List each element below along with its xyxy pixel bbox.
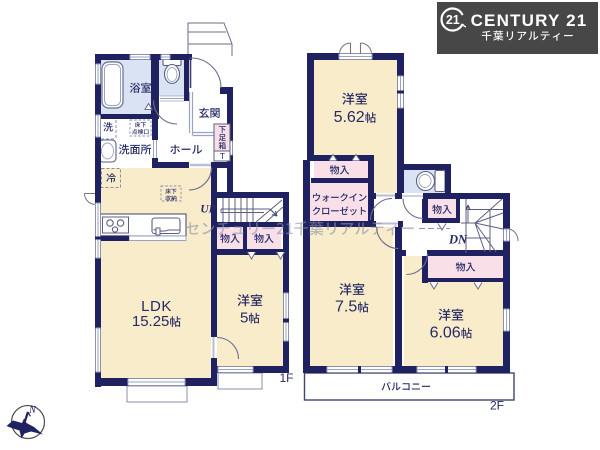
svg-text:T: T bbox=[220, 151, 225, 161]
svg-text:1F: 1F bbox=[279, 371, 293, 385]
svg-text:DN: DN bbox=[448, 233, 468, 247]
svg-text:5: 5 bbox=[240, 310, 248, 327]
svg-text:6.06: 6.06 bbox=[430, 325, 461, 342]
svg-text:15.25: 15.25 bbox=[132, 313, 170, 330]
svg-text:CENTURY 21: CENTURY 21 bbox=[471, 11, 588, 30]
svg-text:N: N bbox=[28, 405, 37, 416]
svg-text:2F: 2F bbox=[490, 399, 504, 413]
svg-text:21: 21 bbox=[446, 13, 460, 27]
svg-text:7.5: 7.5 bbox=[335, 299, 357, 316]
svg-text:UP: UP bbox=[200, 204, 216, 216]
svg-text:5.62: 5.62 bbox=[334, 109, 365, 126]
